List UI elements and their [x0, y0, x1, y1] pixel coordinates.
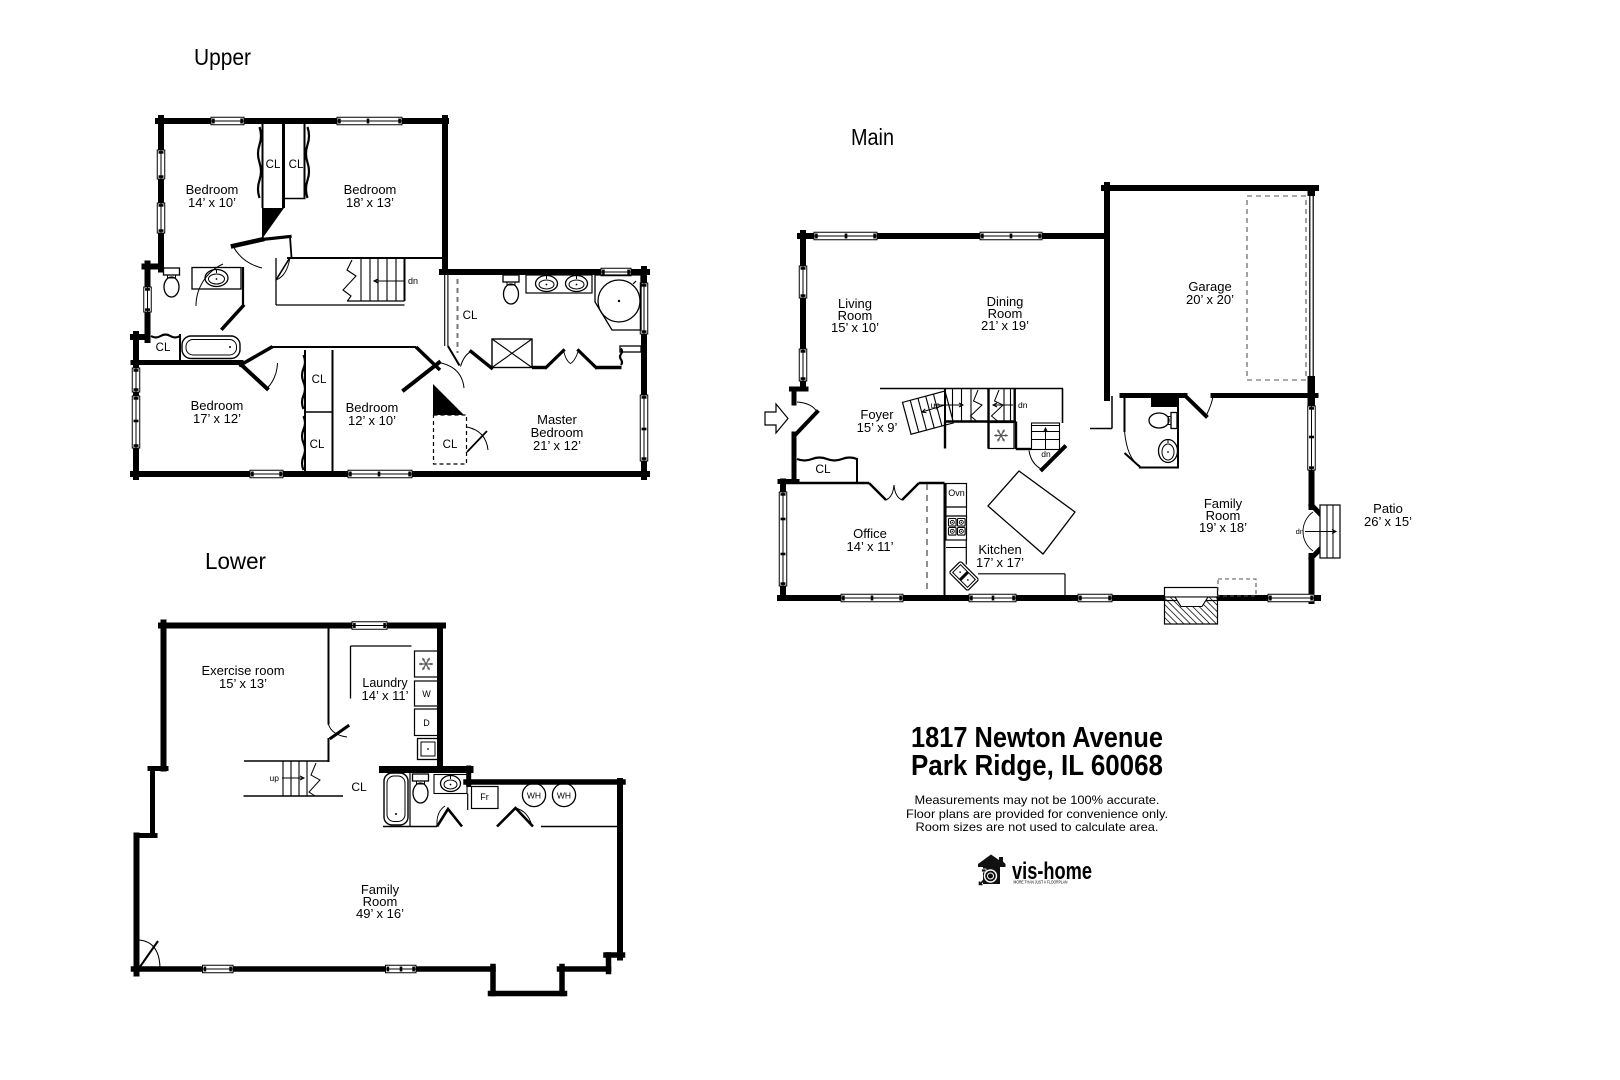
svg-text:up: up [270, 773, 280, 783]
svg-text:19’ x 18’: 19’ x 18’ [1199, 520, 1247, 535]
svg-text:MORE THAN JUST A FLOORPLAN: MORE THAN JUST A FLOORPLAN [1014, 880, 1068, 885]
svg-text:15’ x 13’: 15’ x 13’ [219, 676, 267, 691]
svg-text:WH: WH [557, 791, 571, 801]
svg-text:CL: CL [156, 342, 171, 354]
svg-text:15’ x 10’: 15’ x 10’ [831, 320, 879, 335]
svg-text:CL: CL [266, 159, 281, 171]
svg-text:15’ x 9’: 15’ x 9’ [857, 420, 898, 435]
svg-text:Upper: Upper [194, 44, 251, 70]
svg-text:Room sizes are not used to cal: Room sizes are not used to calculate are… [916, 820, 1159, 834]
svg-text:14’ x 10’: 14’ x 10’ [188, 195, 236, 210]
svg-text:W: W [422, 689, 431, 699]
svg-text:Measurements may not be 100% a: Measurements may not be 100% accurate. [915, 793, 1160, 807]
svg-text:Park Ridge, IL 60068: Park Ridge, IL 60068 [911, 750, 1163, 782]
svg-text:CL: CL [312, 374, 327, 386]
svg-text:26’ x 15’: 26’ x 15’ [1364, 514, 1412, 529]
svg-text:Main: Main [851, 124, 894, 150]
svg-text:CL: CL [351, 780, 367, 794]
svg-text:dn: dn [1041, 449, 1051, 459]
svg-text:18’ x 13’: 18’ x 13’ [346, 195, 394, 210]
svg-text:Lower: Lower [205, 548, 266, 574]
svg-text:17’ x 17’: 17’ x 17’ [976, 555, 1024, 570]
svg-text:dn: dn [408, 276, 418, 286]
svg-text:CL: CL [289, 159, 304, 171]
svg-text:Floor plans are provided for c: Floor plans are provided for convenience… [906, 807, 1168, 821]
svg-text:D: D [423, 718, 430, 728]
svg-text:17’ x 12’: 17’ x 12’ [193, 411, 241, 426]
svg-text:WH: WH [527, 791, 541, 801]
svg-text:CL: CL [310, 439, 325, 451]
svg-text:21’ x 12’: 21’ x 12’ [533, 438, 581, 453]
svg-text:49’ x 16’: 49’ x 16’ [356, 906, 404, 921]
svg-text:Ovn: Ovn [948, 488, 965, 498]
svg-text:12’ x 10’: 12’ x 10’ [348, 413, 396, 428]
svg-text:14’ x 11’: 14’ x 11’ [362, 688, 409, 703]
svg-text:Fr: Fr [480, 792, 489, 802]
svg-text:CL: CL [443, 439, 458, 451]
svg-text:dn: dn [1018, 400, 1028, 410]
svg-text:CL: CL [463, 310, 478, 322]
svg-text:14’ x 11’: 14’ x 11’ [847, 539, 894, 554]
svg-text:CL: CL [815, 462, 831, 476]
svg-text:20’ x 20’: 20’ x 20’ [1186, 292, 1234, 307]
svg-text:21’ x 19’: 21’ x 19’ [981, 318, 1029, 333]
